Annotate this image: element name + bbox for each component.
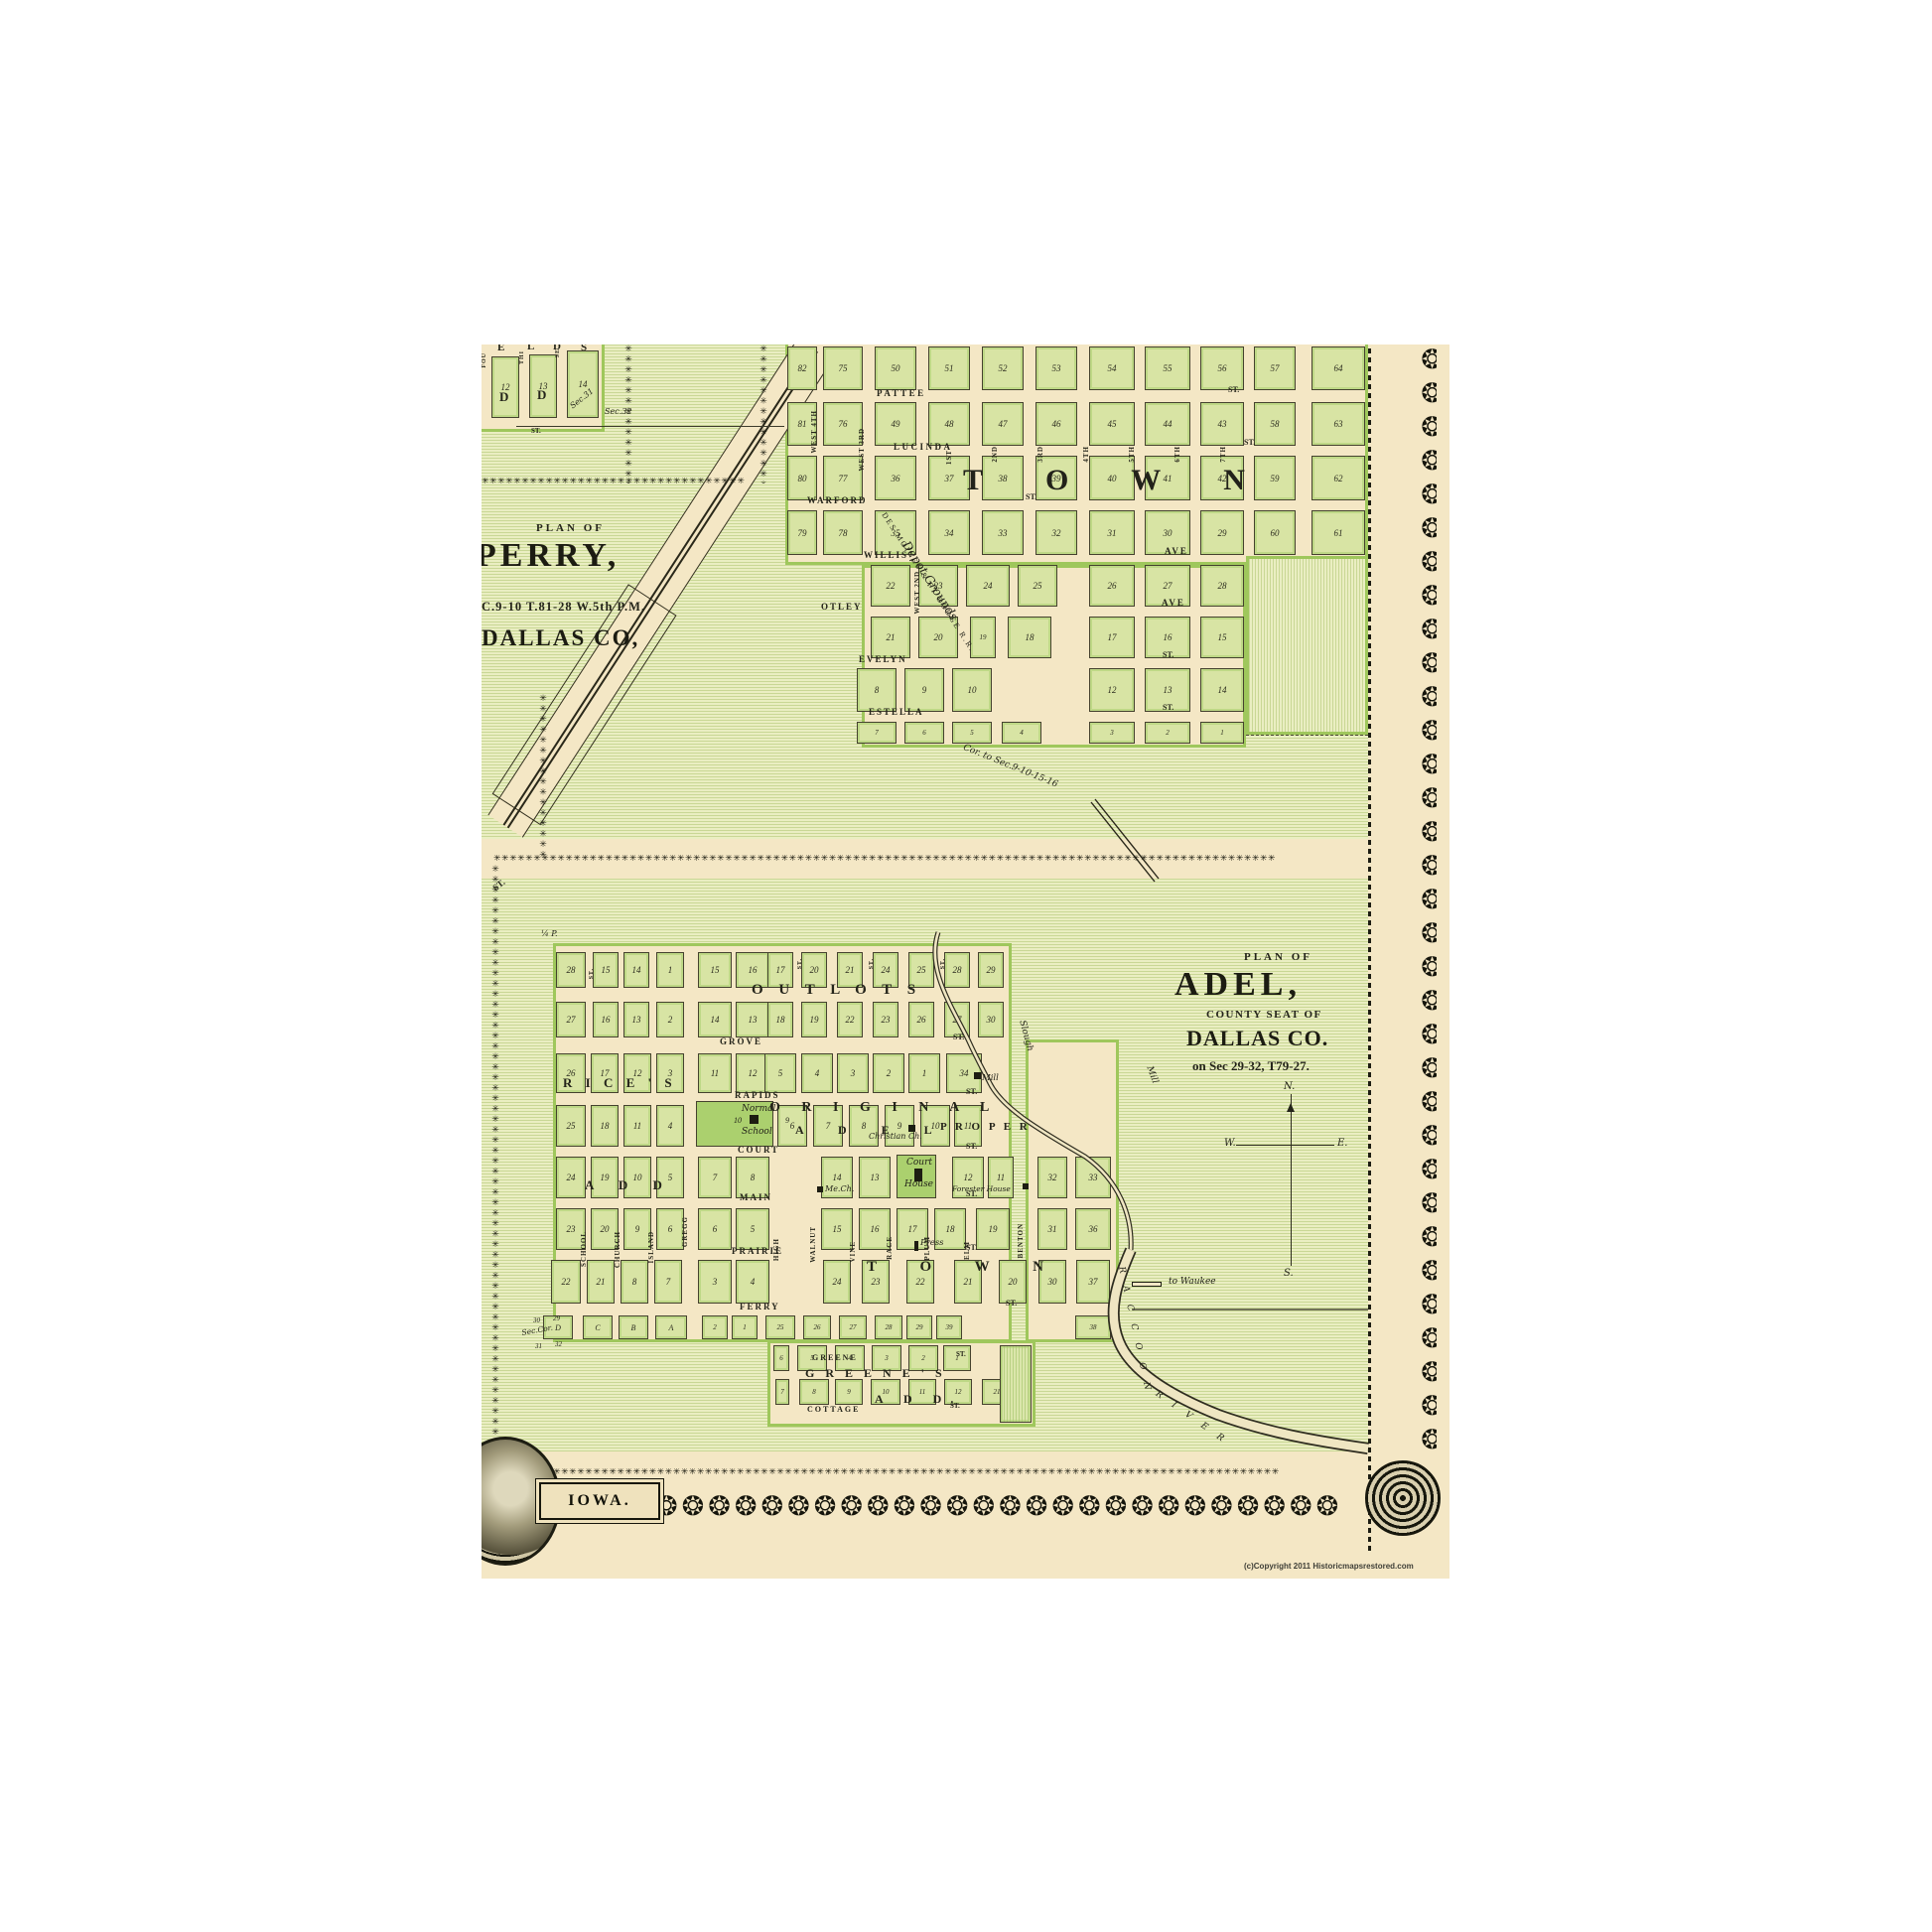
map-annotation: House	[904, 1180, 933, 1189]
adel-town-block: C	[583, 1315, 613, 1339]
adel-town-block: 18	[767, 1002, 793, 1037]
adel-town-block: 1	[908, 1053, 940, 1093]
street-label: ST.	[589, 968, 595, 979]
perry-title-plan-of: PLAN OF	[536, 523, 605, 534]
perry-town-block: 46	[1035, 402, 1077, 446]
adel-town-block: 4	[801, 1053, 833, 1093]
map-annotation: O U T L O T S	[752, 983, 921, 998]
map-annotation: THI	[519, 350, 525, 364]
map-annotation: A D D	[585, 1178, 673, 1191]
perry-town-block: 34	[928, 510, 970, 555]
street-label: GREENE	[812, 1354, 858, 1362]
map-annotation: Christian Ch.	[869, 1133, 922, 1141]
perry-town-block: 14	[1200, 668, 1244, 712]
adel-town-block: 27	[556, 1002, 586, 1037]
compass-s: S.	[1284, 1268, 1294, 1279]
street-label: 7TH	[1220, 446, 1227, 463]
perry-town-block: 7	[857, 722, 897, 744]
adel-town-block: 19	[801, 1002, 827, 1037]
adel-title-plan-of: PLAN OF	[1244, 952, 1312, 963]
adel-town-block: 3	[698, 1260, 732, 1304]
adel-town-block: 13	[623, 1002, 649, 1037]
adel-town-block: 32	[1037, 1157, 1067, 1198]
perry-town-block: 15	[1200, 617, 1244, 658]
perry-town-block: 57	[1254, 346, 1296, 390]
map-annotation: O R I G I N A L	[769, 1101, 998, 1115]
panel-divider-chain: ✳✳✳✳✳✳✳✳✳✳✳✳✳✳✳✳✳✳✳✳✳✳✳✳✳✳✳✳✳✳✳✳✳✳✳✳✳✳✳✳…	[493, 855, 1368, 864]
adel-town-block: B	[619, 1315, 648, 1339]
adel-town-block: 29	[978, 952, 1004, 988]
adel-town-block: 9	[835, 1379, 863, 1405]
building-symbol	[914, 1169, 922, 1181]
street-label: GREGG	[682, 1216, 689, 1247]
street-label: SCHOOL	[581, 1231, 588, 1267]
adel-town-block: 7	[698, 1157, 732, 1198]
adel-town-block: 11	[623, 1105, 651, 1147]
adel-town-block: 24	[556, 1157, 586, 1198]
perry-town-block: 76	[823, 402, 863, 446]
perry-town-block: 18	[1008, 617, 1051, 658]
perry-town-block: 47	[982, 402, 1024, 446]
adel-town-block: 1	[943, 1345, 971, 1371]
perry-town-block: 2	[1145, 722, 1190, 744]
perry-town-block: 10	[952, 668, 992, 712]
perry-town-block: 82	[787, 346, 817, 390]
perry-town-block: 61	[1311, 510, 1365, 555]
adel-town-block: 5	[764, 1053, 796, 1093]
copyright-note: (c)Copyright 2011 Historicmapsrestored.c…	[1244, 1562, 1414, 1571]
building-symbol	[750, 1115, 759, 1124]
adel-town-block: 13	[859, 1157, 891, 1198]
map-annotation: 9	[785, 1117, 789, 1125]
map-annotation: Me.Ch.	[825, 1185, 854, 1193]
map-annotation: ST.	[531, 428, 541, 435]
adel-town-block: 36	[1075, 1208, 1111, 1250]
adel-title-name: ADEL,	[1174, 968, 1302, 1002]
adel-town-block: 28	[944, 952, 970, 988]
state-banner-label: IOWA.	[568, 1492, 630, 1510]
building-symbol	[908, 1125, 915, 1132]
street-label: LUCINDA	[894, 443, 953, 452]
map-annotation: Press	[920, 1239, 944, 1248]
adel-town-block: 7	[775, 1379, 789, 1405]
perry-town-block: 17	[1089, 617, 1135, 658]
perry-town-block: 75	[823, 346, 863, 390]
perry-title-location: C.9-10 T.81-28 W.5th P.M.	[482, 601, 645, 614]
street-label: ST.	[966, 1143, 977, 1151]
compass-n: N.	[1284, 1081, 1295, 1092]
adel-town-block: 25	[556, 1105, 586, 1147]
map-annotation: S	[581, 345, 587, 353]
street-label: 6TH	[1174, 446, 1181, 463]
adel-town-block: 25	[765, 1315, 795, 1339]
perry-town-block: 43	[1200, 402, 1244, 446]
adel-town-block: 30	[978, 1002, 1004, 1037]
street-label: WARFORD	[807, 496, 868, 505]
adel-town-block: 23	[873, 1002, 898, 1037]
map-annotation: 29	[553, 1315, 560, 1322]
map-annotation: FOU	[482, 352, 487, 368]
street-label: 5TH	[1129, 446, 1136, 463]
perry-town-block: 31	[1089, 510, 1135, 555]
panel-divider-chain: ✳✳✳✳✳✳✳✳✳✳✳✳✳✳✳✳	[758, 345, 767, 483]
border-chain-thin: ✳✳✳✳✳✳✳✳✳✳✳✳✳✳✳✳✳✳✳✳✳✳✳✳✳✳✳✳✳✳✳✳✳✳✳✳✳✳✳✳…	[537, 1468, 1368, 1477]
map-annotation: T O W N	[867, 1260, 1063, 1275]
street-label: ST.	[1163, 651, 1173, 659]
perry-town-block: 6	[904, 722, 944, 744]
adel-town-block: 33	[1075, 1157, 1111, 1198]
adel-town-block: 24	[823, 1260, 851, 1304]
street-label: ST.	[869, 958, 875, 969]
street-label: ELM	[964, 1241, 971, 1260]
perry-town-block: 45	[1089, 402, 1135, 446]
street-label: RACE	[887, 1236, 894, 1260]
perry-town-block: 80	[787, 456, 817, 500]
perry-town-block: 64	[1311, 346, 1365, 390]
state-banner: IOWA.	[539, 1482, 660, 1520]
perry-town-block: 63	[1311, 402, 1365, 446]
map-annotation: Forester House	[952, 1185, 1011, 1193]
adel-town-block: 6	[698, 1208, 732, 1250]
adel-town-block: 39	[936, 1315, 962, 1339]
street-label: ESTELLA	[869, 708, 924, 717]
map-annotation: D	[499, 390, 508, 403]
section-line	[516, 426, 784, 427]
page: 8275505152535455565764817649484746454443…	[0, 0, 1932, 1932]
adel-town-block: 7	[654, 1260, 682, 1304]
map-annotation: 30	[533, 1317, 540, 1324]
map-annotation: SE	[555, 348, 561, 357]
adel-town-block: 28	[556, 952, 586, 988]
map-annotation: 10	[734, 1117, 742, 1125]
adel-town-block: 21	[587, 1260, 615, 1304]
street-label: ST.	[966, 1088, 977, 1096]
street-label: 1ST	[946, 450, 953, 465]
street-label: PATTEE	[877, 389, 926, 398]
street-label: ST.	[940, 958, 946, 969]
adel-town-block: 16	[593, 1002, 619, 1037]
adel-town-block: 15	[698, 952, 732, 988]
perry-town-block: 44	[1145, 402, 1190, 446]
adel-town-block: 1	[656, 952, 684, 988]
adel-town-block: 8	[621, 1260, 648, 1304]
map-annotation: 32	[555, 1341, 562, 1348]
adel-town-block: 2	[873, 1053, 904, 1093]
street-label: AVE	[1165, 547, 1188, 556]
map-annotation: School	[742, 1128, 772, 1137]
perry-town-block: 49	[875, 402, 916, 446]
map-annotation: to Waukee	[1169, 1278, 1216, 1287]
map-annotation: Court	[906, 1159, 932, 1168]
compass-vertical-line	[1291, 1094, 1292, 1266]
street-label: FERRY	[740, 1303, 780, 1311]
street-label: ST.	[1006, 1300, 1017, 1308]
perry-town-block: 77	[823, 456, 863, 500]
map-sheet: 8275505152535455565764817649484746454443…	[482, 345, 1449, 1579]
building-symbol	[817, 1186, 823, 1192]
perry-town-label: T O W N	[963, 466, 1273, 495]
street-label: WALNUT	[810, 1226, 817, 1263]
street-label: RAPIDS	[735, 1091, 780, 1100]
adel-town-block: 27	[839, 1315, 867, 1339]
map-annotation: Normal	[742, 1105, 775, 1114]
perry-town-block: 53	[1035, 346, 1077, 390]
street-label: ST.	[1228, 386, 1239, 394]
adel-town-block: 37	[1076, 1260, 1110, 1304]
street-label: BENTON	[1018, 1223, 1025, 1258]
street-label: WEST 4TH	[811, 410, 818, 453]
border-lace-bottom: ❂❂❂❂❂❂❂❂❂❂❂❂❂❂❂❂❂❂❂❂❂❂❂❂❂❂	[655, 1482, 1368, 1534]
adel-town-block: 28	[875, 1315, 902, 1339]
adel-town-block: 11	[698, 1053, 732, 1093]
street-label: MAIN	[740, 1193, 772, 1202]
street-label: VINE	[850, 1241, 857, 1263]
border-inner-line	[1368, 345, 1371, 1551]
street-label: AVE	[1162, 599, 1185, 608]
street-label: ST.	[956, 1351, 966, 1358]
street-label: OTLEY	[821, 603, 863, 612]
fragment-block: 13	[529, 354, 557, 418]
map-annotation: Sec.32	[605, 408, 631, 416]
border-lace-right: ❂❂❂❂❂❂❂❂❂❂❂❂❂❂❂❂❂❂❂❂❂❂❂❂❂❂❂❂❂❂❂❂❂❂❂❂❂❂❂❂	[1381, 345, 1437, 1456]
adel-town-block: 19	[976, 1208, 1010, 1250]
perry-town-block: 8	[857, 668, 897, 712]
adel-town-block: 1	[732, 1315, 758, 1339]
compass-w: W.	[1224, 1138, 1236, 1149]
adel-town-block: 26	[803, 1315, 831, 1339]
adel-town-block: 6	[773, 1345, 789, 1371]
perry-town-block: 78	[823, 510, 863, 555]
street-label: HIGH	[773, 1238, 780, 1261]
street-label: 2ND	[992, 446, 999, 463]
adel-town-block	[1000, 1345, 1032, 1423]
perry-town-block: 4	[1002, 722, 1041, 744]
perry-town-block: 50	[875, 346, 916, 390]
street-label: WEST 3RD	[859, 428, 866, 471]
compass-north-arrow	[1287, 1103, 1295, 1112]
adel-town-block: A	[655, 1315, 687, 1339]
adel-town-block: 14	[623, 952, 649, 988]
perry-town-block: 51	[928, 346, 970, 390]
street-label: ISLAND	[648, 1231, 655, 1263]
street-label: 4TH	[1083, 446, 1090, 463]
adel-town-block: 18	[591, 1105, 619, 1147]
adel-town-block: 6	[656, 1208, 684, 1250]
adel-town-block: 2	[656, 1002, 684, 1037]
adel-town-block: 4	[656, 1105, 684, 1147]
perry-town-block: 21	[871, 617, 910, 658]
street-label: COURT	[738, 1146, 779, 1155]
adel-town-block: 29	[906, 1315, 932, 1339]
street-label: COTTAGE	[807, 1406, 860, 1414]
fragment-block: 12	[491, 356, 519, 418]
street-label: EVELYN	[859, 655, 907, 664]
perry-town-block: 55	[1145, 346, 1190, 390]
street-label: GROVE	[720, 1037, 762, 1046]
adel-town-block: 3	[837, 1053, 869, 1093]
section-dash-line	[1246, 735, 1368, 736]
street-label: ST.	[1163, 704, 1173, 712]
perry-town-block: 19	[970, 617, 996, 658]
adel-title-seat: COUNTY SEAT OF	[1206, 1010, 1322, 1021]
compass-e: E.	[1337, 1138, 1347, 1149]
street-label: ST.	[1244, 439, 1255, 447]
perry-town-block: 28	[1200, 565, 1244, 607]
street-label: 3RD	[1037, 446, 1044, 463]
perry-town-block: 22	[871, 565, 910, 607]
map-annotation: G R E E N E ' S	[805, 1367, 946, 1379]
perry-town-block: 26	[1089, 565, 1135, 607]
perry-title-name: PERRY,	[482, 539, 620, 573]
map-annotation: A D D.	[875, 1393, 962, 1405]
perry-town-block: 33	[982, 510, 1024, 555]
panel-divider-chain: ✳✳✳✳✳✳✳✳✳✳✳✳✳✳✳✳✳✳✳✳✳✳✳✳✳✳✳✳✳✳✳✳✳	[482, 478, 767, 486]
perry-town-block: 25	[1018, 565, 1057, 607]
perry-title-county: DALLAS CO,	[482, 626, 639, 649]
perry-town-block: 54	[1089, 346, 1135, 390]
perry-town-block: 3	[1089, 722, 1135, 744]
adel-town-block: 4	[736, 1260, 769, 1304]
street-label: WILLIS	[864, 551, 908, 560]
building-symbol	[914, 1241, 918, 1251]
perry-town-block: 5	[952, 722, 992, 744]
adel-town-block: 14	[698, 1002, 732, 1037]
map-annotation: P R O P E R	[940, 1122, 1031, 1133]
perry-park-block	[1246, 556, 1368, 735]
adel-title-county: DALLAS CO.	[1186, 1028, 1328, 1049]
perry-town-block: 36	[875, 456, 916, 500]
compass-horizontal-line	[1236, 1145, 1334, 1146]
perry-town-block: 52	[982, 346, 1024, 390]
map-annotation: E	[497, 345, 504, 353]
adel-town-block: 38	[1075, 1315, 1111, 1339]
map-annotation: 31	[535, 1343, 542, 1350]
perry-town-block: 58	[1254, 402, 1296, 446]
panel-divider-chain: ✳✳✳✳✳✳✳✳✳✳✳✳✳✳✳✳✳✳✳✳✳✳✳✳✳✳✳✳✳✳✳✳✳✳✳✳✳✳✳✳…	[489, 865, 499, 1460]
adel-town-block: 15	[593, 952, 619, 988]
perry-town-block: 56	[1200, 346, 1244, 390]
map-annotation: L	[527, 345, 534, 352]
panel-divider-chain: ✳✳✳✳✳✳✳✳✳✳✳✳✳✳✳✳✳✳✳	[537, 694, 547, 861]
street-label: CHURCH	[615, 1231, 621, 1268]
street-label: ST.	[797, 958, 803, 969]
adel-town-block: 5	[736, 1208, 769, 1250]
adel-town-block: 31	[1037, 1208, 1067, 1250]
perry-town-block: 24	[966, 565, 1010, 607]
adel-town-block: 2	[702, 1315, 728, 1339]
map-annotation: Mill	[982, 1074, 999, 1083]
adel-town-block: 22	[551, 1260, 581, 1304]
adel-town-block: 26	[908, 1002, 934, 1037]
perry-town-block: 62	[1311, 456, 1365, 500]
perry-town-block: 9	[904, 668, 944, 712]
map-annotation: D	[537, 388, 546, 401]
adel-title-section: on Sec 29-32, T79-27.	[1192, 1059, 1310, 1072]
adel-town-block: 22	[837, 1002, 863, 1037]
corner-medallion	[1365, 1460, 1441, 1536]
perry-town-block: 32	[1035, 510, 1077, 555]
perry-town-block: 29	[1200, 510, 1244, 555]
building-symbol	[1132, 1282, 1162, 1287]
perry-town-block: 60	[1254, 510, 1296, 555]
building-symbol	[1023, 1183, 1029, 1189]
map-annotation: ¼ P.	[541, 930, 558, 938]
perry-town-block: 12	[1089, 668, 1135, 712]
adel-town-block: 8	[799, 1379, 829, 1405]
adel-town-block: 13	[736, 1002, 769, 1037]
street-label: ST.	[953, 1034, 964, 1041]
perry-town-block: 79	[787, 510, 817, 555]
perry-town-block: 1	[1200, 722, 1244, 744]
map-annotation: R I C E ' S	[563, 1076, 677, 1089]
building-symbol	[974, 1072, 981, 1079]
perry-town-block: 48	[928, 402, 970, 446]
